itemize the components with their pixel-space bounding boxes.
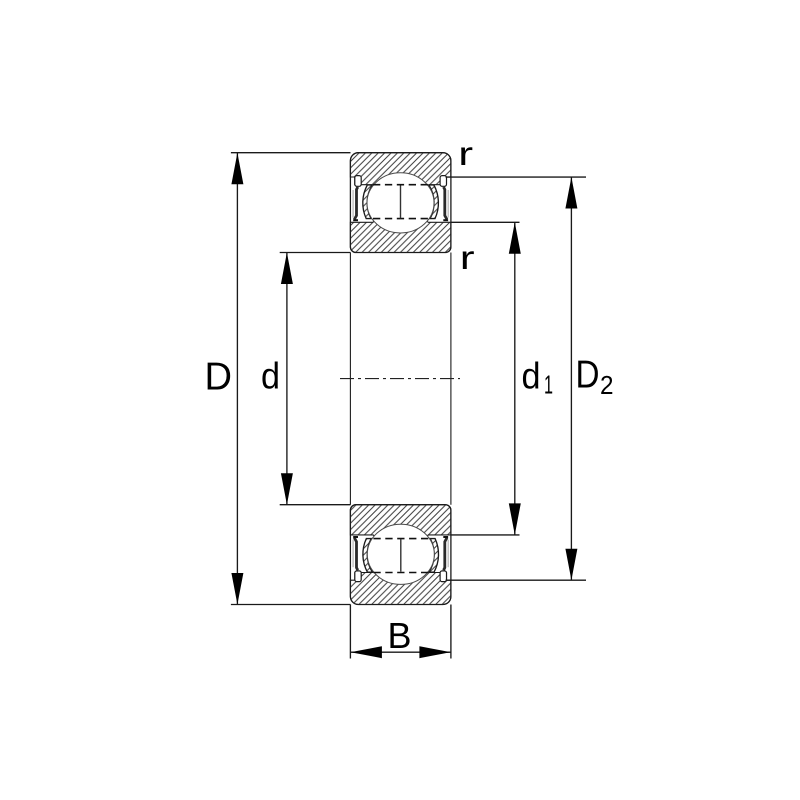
svg-text:D: D — [576, 353, 600, 396]
svg-text:B: B — [388, 615, 412, 656]
svg-text:r: r — [458, 136, 473, 172]
svg-text:1: 1 — [544, 370, 553, 400]
svg-text:d: d — [522, 355, 541, 396]
svg-text:D: D — [205, 356, 233, 399]
svg-text:2: 2 — [600, 370, 614, 400]
svg-text:r: r — [460, 240, 475, 276]
svg-text:d: d — [261, 355, 280, 396]
